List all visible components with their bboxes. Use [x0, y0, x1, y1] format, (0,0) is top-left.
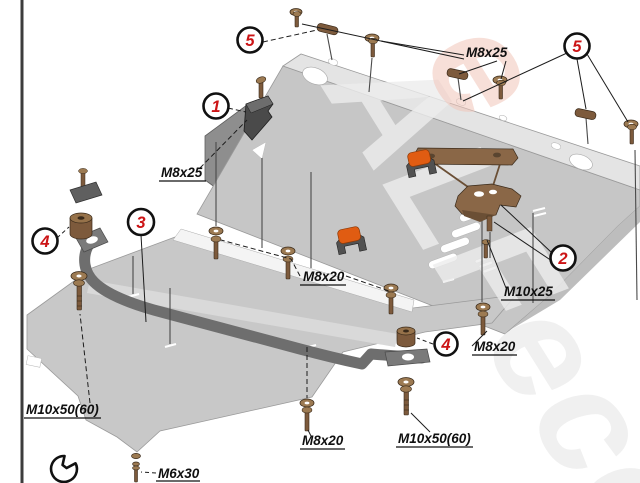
callout-2: 2 [551, 246, 576, 271]
callout-number: 4 [440, 336, 450, 354]
bolt-label-m8x25-left: M8x25 [161, 165, 203, 180]
bolt-label-m8x25-top: M8x25 [466, 45, 508, 60]
diagram-page: ALFeco e eco [0, 0, 640, 483]
callout-number: 1 [211, 98, 220, 116]
washer [300, 399, 314, 407]
callout-5-right: 5 [565, 34, 590, 59]
washer [384, 284, 398, 292]
assembly-diagram: ALFeco e eco [0, 0, 640, 483]
callout-4-right: 4 [435, 333, 458, 356]
washer [133, 462, 140, 466]
callout-4-left: 4 [33, 229, 58, 254]
bolt-label-m10x50-bottom: M10x50(60) [398, 431, 471, 446]
washer [209, 227, 223, 235]
bolt-label-m10x50-left: M10x50(60) [26, 402, 99, 417]
washer [281, 247, 295, 255]
washer [71, 272, 87, 281]
callout-5-left: 5 [238, 28, 263, 53]
callout-3: 3 [128, 209, 154, 235]
callout-number: 4 [39, 233, 49, 251]
bolt-label-m8x20-right: M8x20 [474, 339, 516, 354]
callout-number: 5 [572, 38, 582, 56]
bushing-right [397, 327, 415, 347]
strap-pad-right-hole [402, 354, 414, 361]
callout-1: 1 [204, 94, 229, 119]
washer [132, 453, 141, 458]
bolt-label-m8x20-bottom: M8x20 [302, 433, 344, 448]
bushing-left [70, 213, 92, 239]
washer [476, 303, 490, 311]
bolt-label-m6x30: M6x30 [158, 466, 200, 481]
bolt-label-m10x25: M10x25 [504, 284, 553, 299]
washer [398, 378, 414, 387]
callout-number: 5 [245, 32, 255, 50]
bolt-label-m8x20-mid: M8x20 [303, 269, 345, 284]
callout-number: 2 [557, 250, 567, 268]
callout-number: 3 [136, 214, 145, 232]
